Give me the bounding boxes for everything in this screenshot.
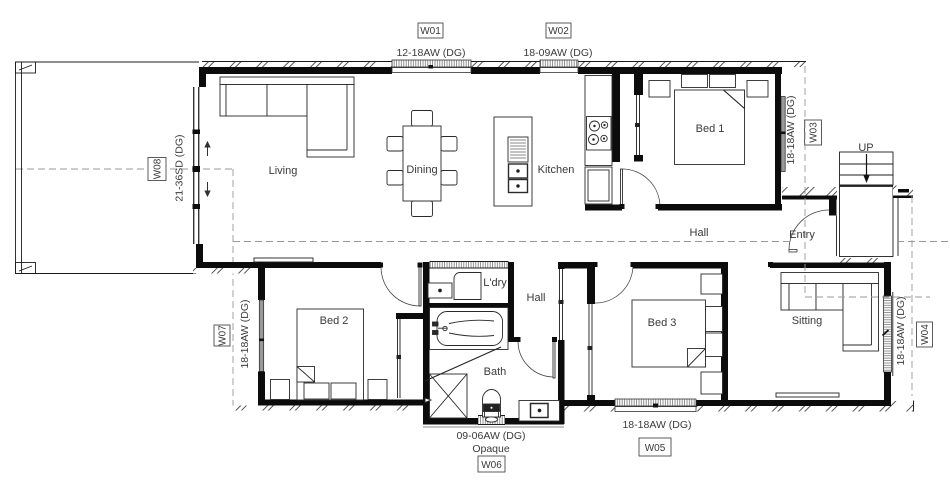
svg-text:Bath: Bath bbox=[484, 366, 507, 378]
svg-text:W08: W08 bbox=[153, 158, 164, 179]
svg-text:Bed 3: Bed 3 bbox=[648, 317, 677, 329]
svg-text:W03: W03 bbox=[809, 122, 820, 143]
svg-text:W01: W01 bbox=[420, 26, 441, 37]
svg-text:18-18AW (DG): 18-18AW (DG) bbox=[239, 299, 251, 368]
svg-text:UP: UP bbox=[858, 142, 873, 154]
svg-text:Bed 2: Bed 2 bbox=[320, 315, 349, 327]
svg-text:Opaque: Opaque bbox=[472, 443, 510, 455]
svg-text:18-09AW (DG): 18-09AW (DG) bbox=[523, 47, 592, 59]
svg-text:18-18AW (DG): 18-18AW (DG) bbox=[895, 296, 907, 365]
svg-text:W06: W06 bbox=[481, 460, 502, 471]
svg-text:Kitchen: Kitchen bbox=[538, 164, 575, 176]
svg-text:Sitting: Sitting bbox=[792, 315, 823, 327]
svg-text:18-18AW (DG): 18-18AW (DG) bbox=[622, 419, 691, 431]
svg-text:18-18AW (DG): 18-18AW (DG) bbox=[785, 95, 797, 164]
svg-text:Hall: Hall bbox=[527, 292, 546, 304]
svg-text:Hall: Hall bbox=[690, 227, 709, 239]
svg-text:W04: W04 bbox=[920, 324, 931, 345]
svg-text:Bed 1: Bed 1 bbox=[696, 123, 725, 135]
svg-text:21-36SD (DG): 21-36SD (DG) bbox=[174, 134, 186, 201]
svg-text:W02: W02 bbox=[548, 26, 569, 37]
svg-text:Entry: Entry bbox=[789, 229, 815, 241]
svg-text:L'dry: L'dry bbox=[483, 277, 507, 289]
svg-text:Dining: Dining bbox=[406, 164, 437, 176]
svg-text:W05: W05 bbox=[645, 443, 666, 454]
svg-text:09-06AW (DG): 09-06AW (DG) bbox=[456, 430, 525, 442]
svg-text:12-18AW (DG): 12-18AW (DG) bbox=[396, 47, 465, 59]
svg-text:W07: W07 bbox=[218, 325, 229, 346]
svg-text:Living: Living bbox=[269, 165, 298, 177]
